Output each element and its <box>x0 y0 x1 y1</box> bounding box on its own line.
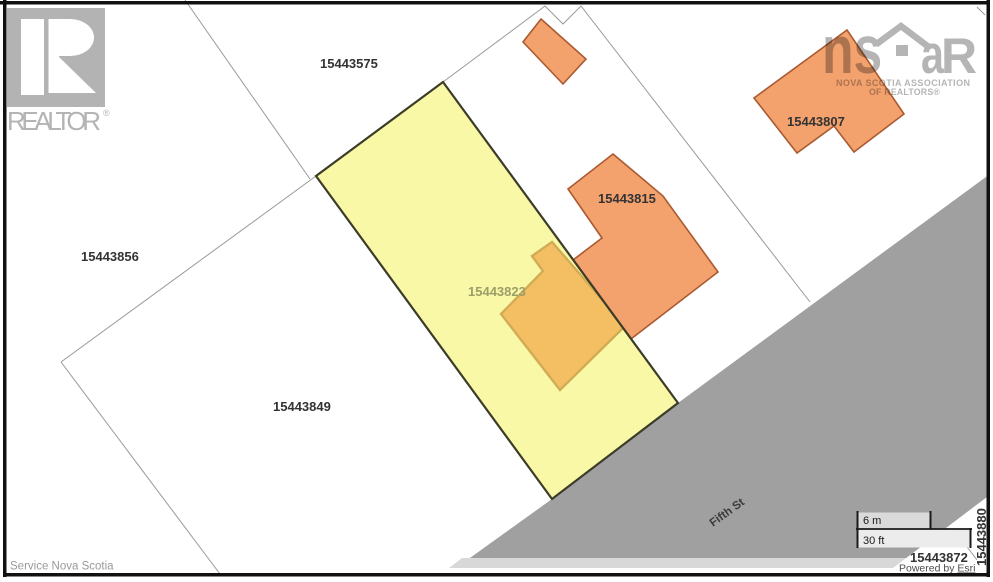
svg-text:30 ft: 30 ft <box>863 535 884 547</box>
svg-text:OF REALTORS®: OF REALTORS® <box>869 87 940 97</box>
svg-text:®: ® <box>103 108 110 118</box>
svg-text:REALTOR: REALTOR <box>7 106 101 136</box>
svg-text:ns: ns <box>822 11 882 88</box>
svg-text:15443856: 15443856 <box>81 249 139 264</box>
svg-text:15443849: 15443849 <box>273 399 331 414</box>
svg-text:R: R <box>941 28 977 84</box>
svg-text:15443807: 15443807 <box>787 114 845 129</box>
svg-text:Powered by Esri: Powered by Esri <box>899 563 975 575</box>
svg-text:6 m: 6 m <box>863 515 881 527</box>
svg-text:Service Nova Scotia: Service Nova Scotia <box>10 561 114 573</box>
svg-text:15443815: 15443815 <box>598 191 656 206</box>
svg-text:15443575: 15443575 <box>320 56 378 71</box>
svg-text:15443823: 15443823 <box>468 284 526 299</box>
